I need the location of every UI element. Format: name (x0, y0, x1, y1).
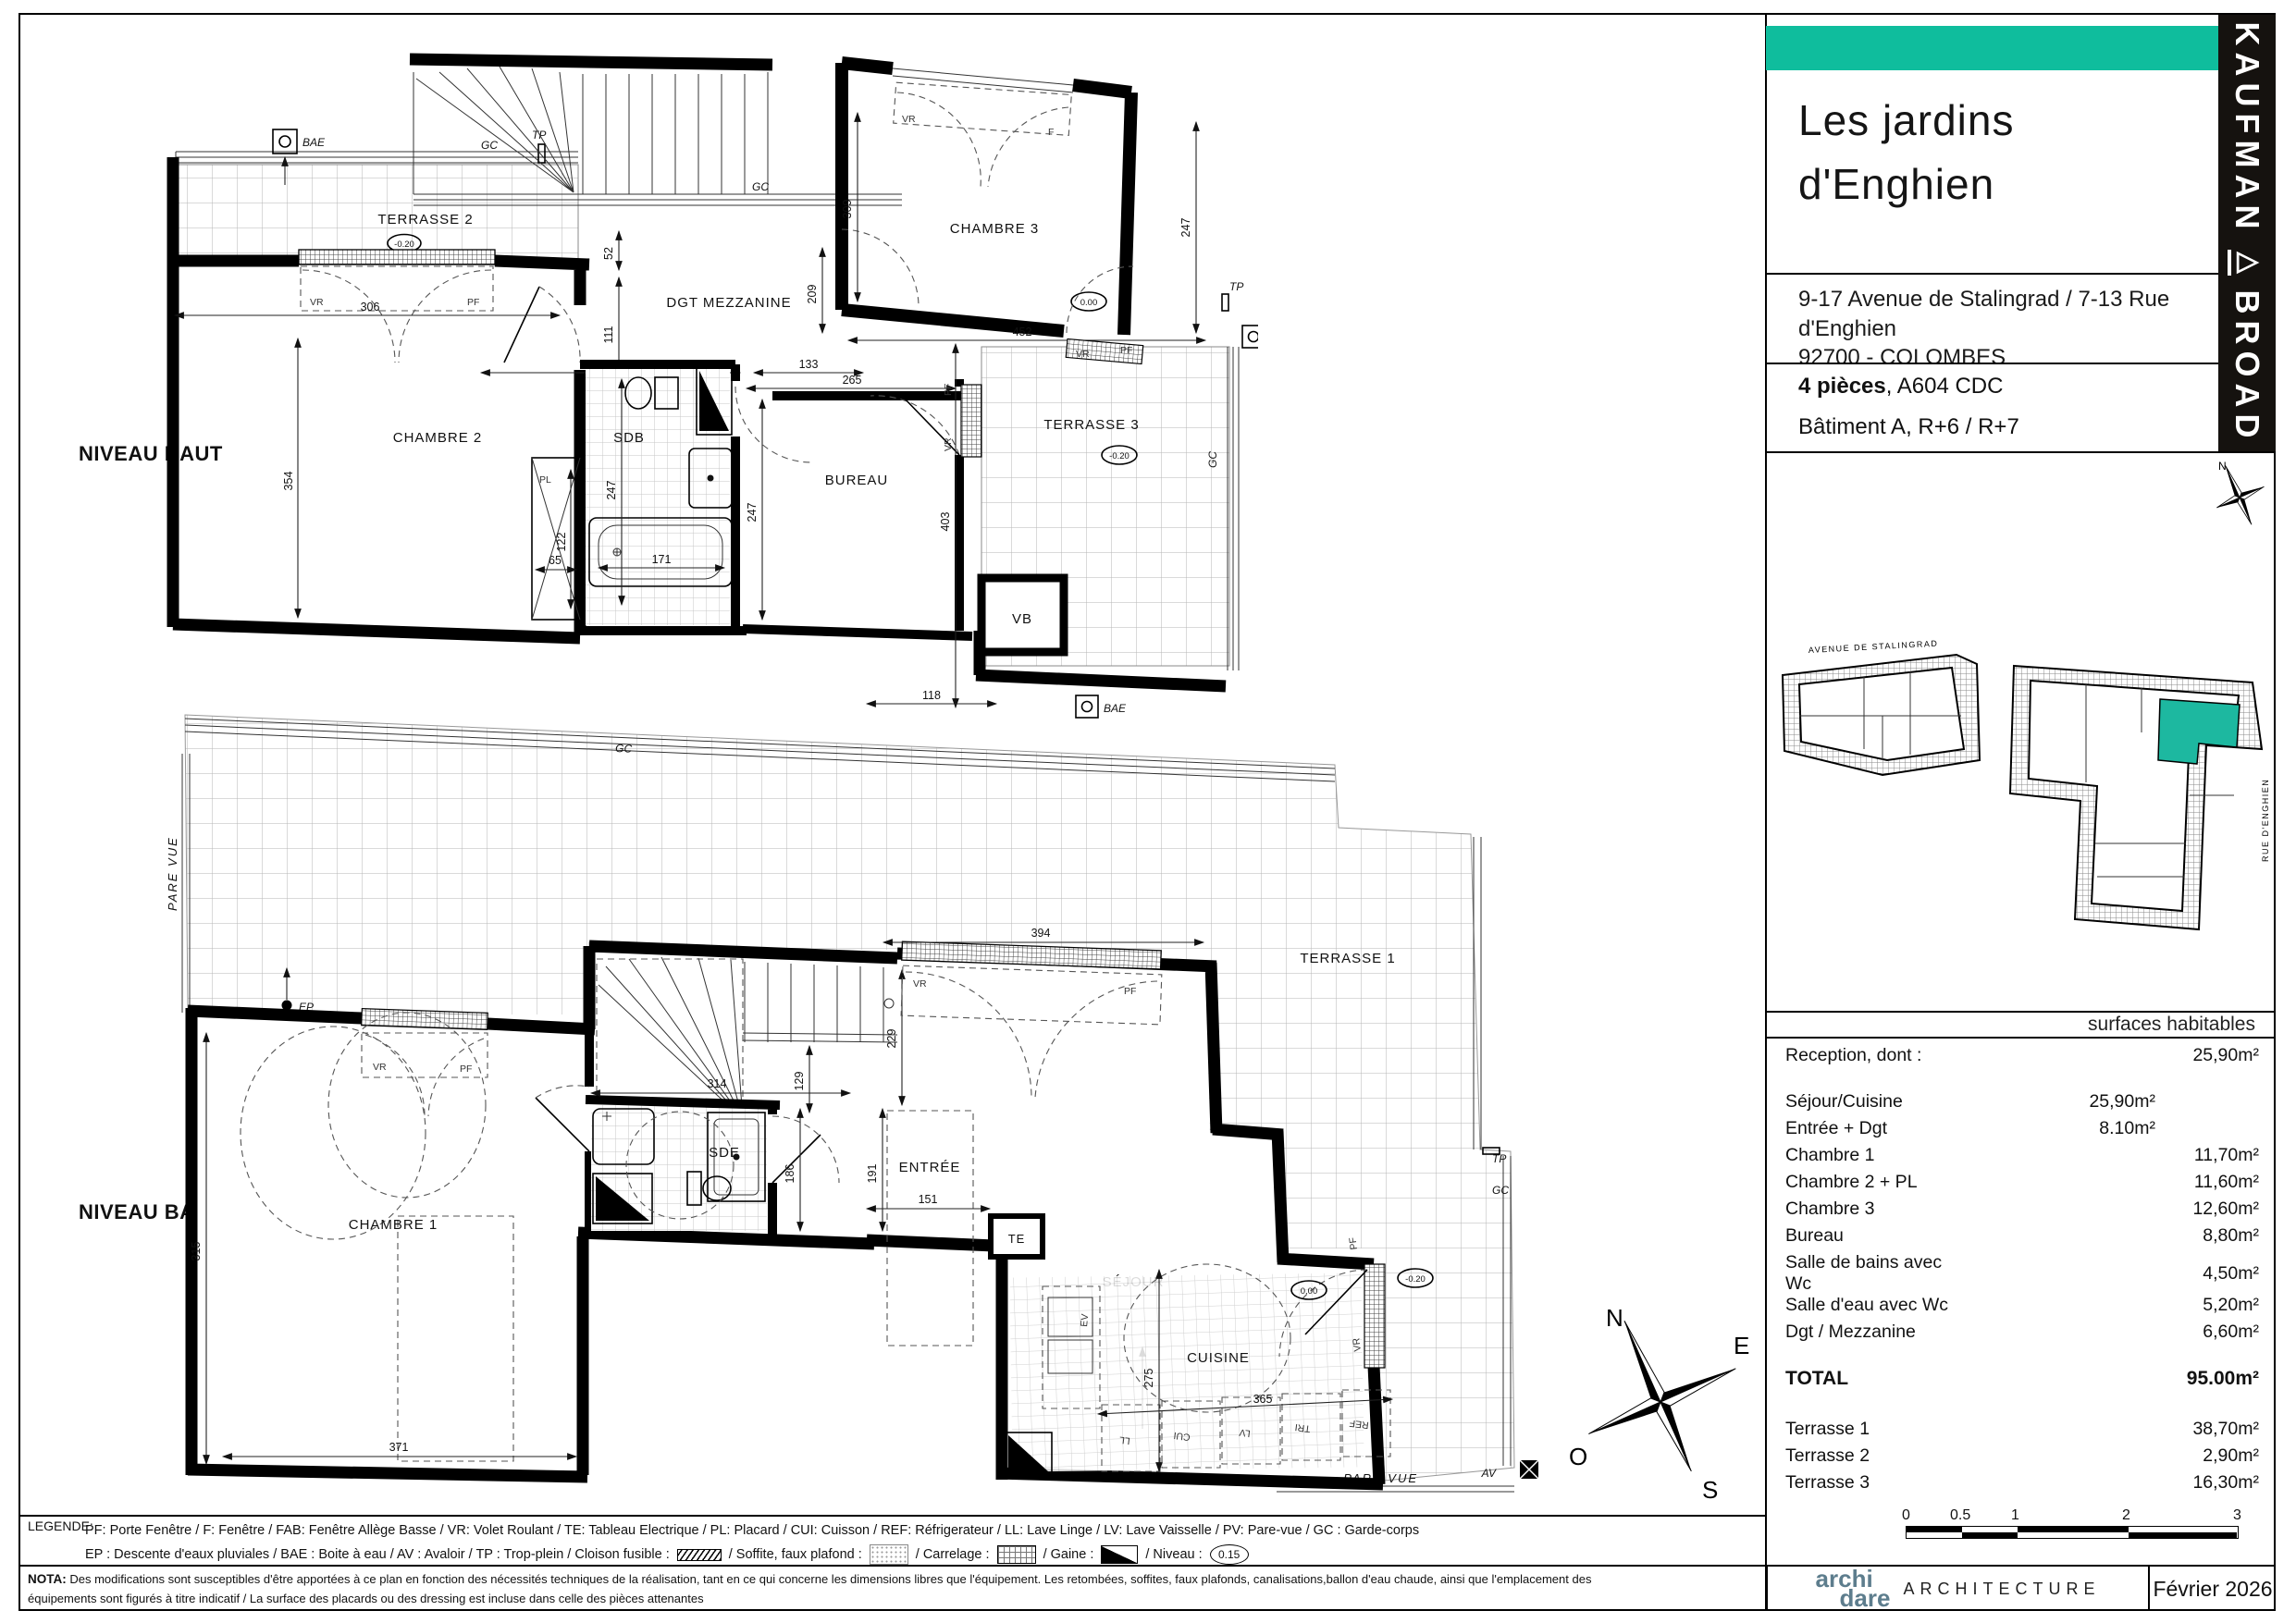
compass-e: E (1734, 1332, 1749, 1359)
project-title: Les jardins d'Enghien (1798, 89, 2014, 216)
legend-line2-text: / Soffite, faux plafond : (729, 1547, 862, 1562)
surface-row: TOTAL 95.00m² (1785, 1368, 2259, 1399)
surface-row: Bureau 8,80m² (1785, 1225, 2259, 1252)
gaine-swatch (1101, 1545, 1138, 1564)
plan-date: Février 2026 (2153, 1577, 2272, 1602)
room-terrasse2: TERRASSE 2 (377, 212, 473, 227)
dim: 306 (361, 301, 380, 314)
room-bureau: BUREAU (825, 473, 889, 488)
level-terrasse2: -0.20 (394, 240, 414, 250)
surface-row: Salle de bains avec Wc 4,50m² (1785, 1252, 2259, 1295)
dim: 247 (746, 503, 759, 523)
upper-floor-plan: BAE TP GC TERRASSE 2 -0.20 GC DGT MEZZAN… (162, 28, 1258, 721)
dim: 394 (1031, 927, 1051, 940)
brand-banner: KAUFMAN △ BROAD (2218, 15, 2276, 451)
surface-value: 4,50m² (2155, 1263, 2259, 1285)
surface-label: Reception, dont : (1785, 1045, 2063, 1066)
pare-vue-tag: PARE VUE (166, 836, 179, 911)
room-chambre2: CHAMBRE 2 (393, 430, 483, 446)
surface-label: Terrasse 2 (1785, 1445, 2063, 1467)
level-chambre3: 0.00 (1080, 298, 1098, 308)
surface-value: 11,60m² (2155, 1172, 2259, 1193)
surface-label: Salle d'eau avec Wc (1785, 1295, 2063, 1316)
surface-label: Chambre 3 (1785, 1199, 2063, 1220)
brand-word-kaufman: KAUFMAN (2228, 21, 2266, 235)
legend-line2: EP : Descente d'eaux pluviales / BAE : B… (85, 1544, 1249, 1565)
surface-row (1785, 1072, 2259, 1091)
surface-row: Chambre 3 12,60m² (1785, 1199, 2259, 1225)
ref-tag: REF (1349, 1417, 1369, 1430)
tri-tag: TRI (1294, 1421, 1311, 1434)
architect-logo-bottom: dare (1840, 1589, 1891, 1608)
vr-tag: VR (310, 297, 324, 308)
room-sde: SDE (709, 1145, 740, 1161)
scale-tick: 2 (2122, 1507, 2130, 1524)
legend-line2-text: / Niveau : (1145, 1547, 1202, 1562)
cloison-fusible-swatch (677, 1549, 722, 1561)
pf-tag: PF (1124, 986, 1136, 997)
nota-block: NOTA: Des modifications sont susceptible… (19, 1565, 1766, 1611)
nota-line1: Des modifications sont susceptibles d'êt… (69, 1572, 1591, 1586)
surface-label: Terrasse 1 (1785, 1419, 2063, 1440)
dim: 365 (1253, 1393, 1273, 1406)
dim: 65 (549, 554, 562, 567)
tp-tag: TP (532, 129, 546, 141)
scale-bar: 0 0.5 1 2 3 (1906, 1507, 2242, 1541)
cui-tag: CUI (1173, 1430, 1191, 1443)
architect-box: archidare ARCHITECTURE (1766, 1565, 2148, 1611)
unit-building: Bâtiment A, R+6 / R+7 (1798, 414, 2019, 440)
surface-label: Terrasse 3 (1785, 1472, 2063, 1494)
street-rue-label: RUE D'ENGHIEN (2261, 779, 2270, 862)
street-avenue-label: AVENUE DE STALINGRAD (1808, 639, 1939, 655)
site-key-plan: AVENUE DE STALINGRAD RUE D'ENGHIEN (1771, 518, 2276, 1008)
scale-tick: 0 (1902, 1507, 1910, 1524)
surface-row: Terrasse 3 16,30m² (1785, 1472, 2259, 1499)
building-b-outline (2010, 666, 2262, 929)
room-terrasse1: TERRASSE 1 (1300, 951, 1395, 966)
pf-tag: PF (1120, 345, 1132, 356)
project-title-line2: d'Enghien (1798, 153, 2014, 216)
door-chambre2 (504, 287, 580, 363)
architect-word: ARCHITECTURE (1903, 1580, 2100, 1599)
surface-label: Salle de bains avec Wc (1785, 1252, 1970, 1295)
pl-tag: PL (539, 474, 551, 486)
bae-tag: BAE (302, 136, 326, 149)
dim: 247 (605, 481, 618, 500)
window-chambre2 (299, 250, 495, 363)
door-arc-chambre3 (842, 229, 919, 305)
nota-label: NOTA: (28, 1572, 67, 1586)
dim: 186 (784, 1164, 796, 1184)
dim: 315 (190, 1242, 203, 1261)
project-title-line1: Les jardins (1798, 89, 2014, 153)
pf-tag: PF (1347, 1236, 1360, 1250)
surface-subvalue: 25,90m² (2063, 1091, 2155, 1113)
vr-tag: VR (1076, 349, 1090, 360)
level-terrasse3: -0.20 (1109, 451, 1129, 461)
f-tag: F (1048, 127, 1054, 138)
surface-row: Terrasse 1 38,70m² (1785, 1419, 2259, 1445)
plan-sheet: NIVEAU HAUT BAE TP GC TERRASSE 2 -0.20 (0, 0, 2296, 1623)
room-entree: ENTRÉE (899, 1160, 961, 1175)
scale-tick: 0.5 (1950, 1507, 1970, 1524)
surface-subvalue: 8.10m² (2063, 1118, 2155, 1139)
dim: 247 (1179, 218, 1192, 238)
legend-title: LEGENDE: (28, 1518, 93, 1533)
surface-label: Chambre 2 + PL (1785, 1172, 2063, 1193)
gc-tag: GC (615, 742, 633, 756)
accent-bar (1766, 26, 2218, 70)
surface-label: Dgt / Mezzanine (1785, 1322, 2063, 1343)
nota-line2: équipements sont figurés à titre indicat… (28, 1592, 704, 1605)
walls-bureau (743, 379, 972, 636)
dim: 309 (841, 200, 854, 219)
surfaces-table: Reception, dont : 25,90m² Séjour/Cuisine… (1785, 1045, 2259, 1499)
compass-s: S (1702, 1476, 1718, 1504)
surface-value: 95.00m² (2155, 1368, 2259, 1390)
scale-tick: 3 (2233, 1507, 2241, 1524)
pf-tag: PF (467, 297, 479, 308)
surface-value: 25,90m² (2155, 1045, 2259, 1066)
niveau-swatch: 0.15 (1210, 1544, 1249, 1565)
dim: 151 (919, 1193, 938, 1206)
surface-row: Entrée + Dgt 8.10m² (1785, 1118, 2259, 1145)
av-tag: AV (1481, 1467, 1497, 1480)
date-box: Février 2026 (2148, 1565, 2276, 1611)
dim: 209 (806, 285, 819, 304)
surface-row: Reception, dont : 25,90m² (1785, 1045, 2259, 1072)
north-arrow-n: N (2218, 460, 2227, 473)
surface-row: Chambre 2 + PL 11,60m² (1785, 1172, 2259, 1199)
lv-tag: LV (1239, 1427, 1251, 1439)
surface-row (1785, 1399, 2259, 1419)
te-tag: TE (1008, 1232, 1026, 1246)
project-address: 9-17 Avenue de Stalingrad / 7-13 Rue d'E… (1798, 285, 2169, 373)
legend: LEGENDE: PF: Porte Fenêtre / F: Fenêtre … (19, 1515, 1766, 1565)
surface-label: TOTAL (1785, 1368, 2063, 1390)
panel-divider (1765, 15, 1767, 1611)
surface-row: Dgt / Mezzanine 6,60m² (1785, 1322, 2259, 1348)
surface-label: Bureau (1785, 1225, 2063, 1247)
room-cuisine: CUISINE (1187, 1350, 1250, 1366)
surface-row: Terrasse 2 2,90m² (1785, 1445, 2259, 1472)
room-chambre3: CHAMBRE 3 (950, 221, 1040, 237)
vr-tag: VR (373, 1062, 387, 1073)
dim: 354 (282, 472, 295, 491)
address-line1: 9-17 Avenue de Stalingrad / 7-13 Rue (1798, 285, 2169, 314)
tp-tag: TP (1229, 280, 1243, 293)
surface-label: Entrée + Dgt (1785, 1118, 2063, 1139)
ev-tag: EV (1079, 1313, 1091, 1327)
room-dgt-mezzanine: DGT MEZZANINE (666, 295, 791, 311)
dim: 122 (555, 533, 568, 552)
legend-line2-text: / Carrelage : (916, 1547, 990, 1562)
dim: 371 (389, 1441, 409, 1454)
vr-tag: VR (913, 978, 927, 990)
dim: 191 (866, 1164, 879, 1184)
surface-value: 12,60m² (2155, 1199, 2259, 1220)
surface-label: Séjour/Cuisine (1785, 1091, 2063, 1113)
dim: 314 (708, 1077, 727, 1090)
dim: 275 (1142, 1369, 1155, 1388)
dim: 133 (799, 358, 819, 371)
gc-tag: GC (752, 180, 769, 193)
vr-tag: VR (1351, 1337, 1364, 1352)
compass-rose: N E O S (1562, 1293, 1759, 1511)
carrelage-swatch (997, 1545, 1036, 1564)
dim: 452 (1013, 326, 1032, 338)
gc-tag: GC (481, 139, 498, 152)
vr-tag: VR (902, 114, 916, 125)
legend-line2-text: EP : Descente d'eaux pluviales / BAE : B… (85, 1547, 670, 1562)
dim: 171 (652, 553, 672, 566)
surface-value: 11,70m² (2155, 1145, 2259, 1166)
unit-type: 4 pièces, A604 CDC (1798, 374, 2003, 400)
terrace3-guardrail (1222, 294, 1258, 670)
dim: 229 (885, 1029, 898, 1049)
surface-value: 8,80m² (2155, 1225, 2259, 1247)
walls-chambre3 (842, 63, 1131, 335)
brand-logo-icon: △ (2228, 250, 2266, 275)
brand-word-broad: BROAD (2228, 290, 2266, 445)
level-terrasse1: -0.20 (1405, 1274, 1426, 1285)
window-chambre3 (894, 82, 1072, 187)
unit-ref: , A604 CDC (1886, 374, 2004, 399)
surface-value: 2,90m² (2155, 1445, 2259, 1467)
room-terrasse3: TERRASSE 3 (1043, 417, 1139, 433)
dim: 265 (843, 374, 862, 387)
legend-line1: PF: Porte Fenêtre / F: Fenêtre / FAB: Fe… (85, 1523, 1419, 1538)
tp-tag: TP (1492, 1152, 1506, 1165)
surface-row: Salle d'eau avec Wc 5,20m² (1785, 1295, 2259, 1322)
pf-tag: PF (460, 1064, 472, 1075)
surface-label: Chambre 1 (1785, 1145, 2063, 1166)
room-sdb: SDB (613, 430, 645, 446)
pf-tag: PF (943, 384, 954, 396)
surface-row: Séjour/Cuisine 25,90m² (1785, 1091, 2259, 1118)
surface-value: 5,20m² (2155, 1295, 2259, 1316)
surface-row: Chambre 1 11,70m² (1785, 1145, 2259, 1172)
dim: 403 (939, 512, 952, 532)
dim: 129 (793, 1072, 806, 1091)
vr-tag: VR (943, 437, 954, 451)
dim: 52 (602, 247, 615, 260)
ll-tag: LL (1118, 1434, 1130, 1446)
address-line2: d'Enghien (1798, 314, 2169, 344)
surfaces-header: surfaces habitables (2088, 1014, 2255, 1036)
dim: 111 (602, 326, 615, 343)
gc-tag: GC (1492, 1184, 1509, 1197)
surface-value: 6,60m² (2155, 1322, 2259, 1343)
address-line3: 92700 - COLOMBES (1798, 343, 2169, 373)
room-chambre1: CHAMBRE 1 (349, 1217, 438, 1233)
compass-o: O (1569, 1443, 1587, 1470)
architect-logo: archidare (1816, 1569, 1891, 1608)
compass-n: N (1606, 1304, 1623, 1332)
scale-tick: 1 (2011, 1507, 2019, 1524)
unit-rooms: 4 pièces (1798, 374, 1886, 399)
legend-line2-text: / Gaine : (1043, 1547, 1094, 1562)
level-sejour: 0.00 (1301, 1286, 1318, 1297)
vb-tag: VB (1012, 611, 1032, 627)
soffite-swatch (870, 1544, 908, 1565)
surface-value: 38,70m² (2155, 1419, 2259, 1440)
lower-floor-plan: GC PARE VUE EP TERRASSE 1 TP GC AV PARE … (162, 698, 1559, 1521)
gc-tag: GC (1206, 451, 1219, 468)
building-a-outline (1783, 655, 1980, 775)
surface-row (1785, 1348, 2259, 1368)
surface-value: 16,30m² (2155, 1472, 2259, 1494)
